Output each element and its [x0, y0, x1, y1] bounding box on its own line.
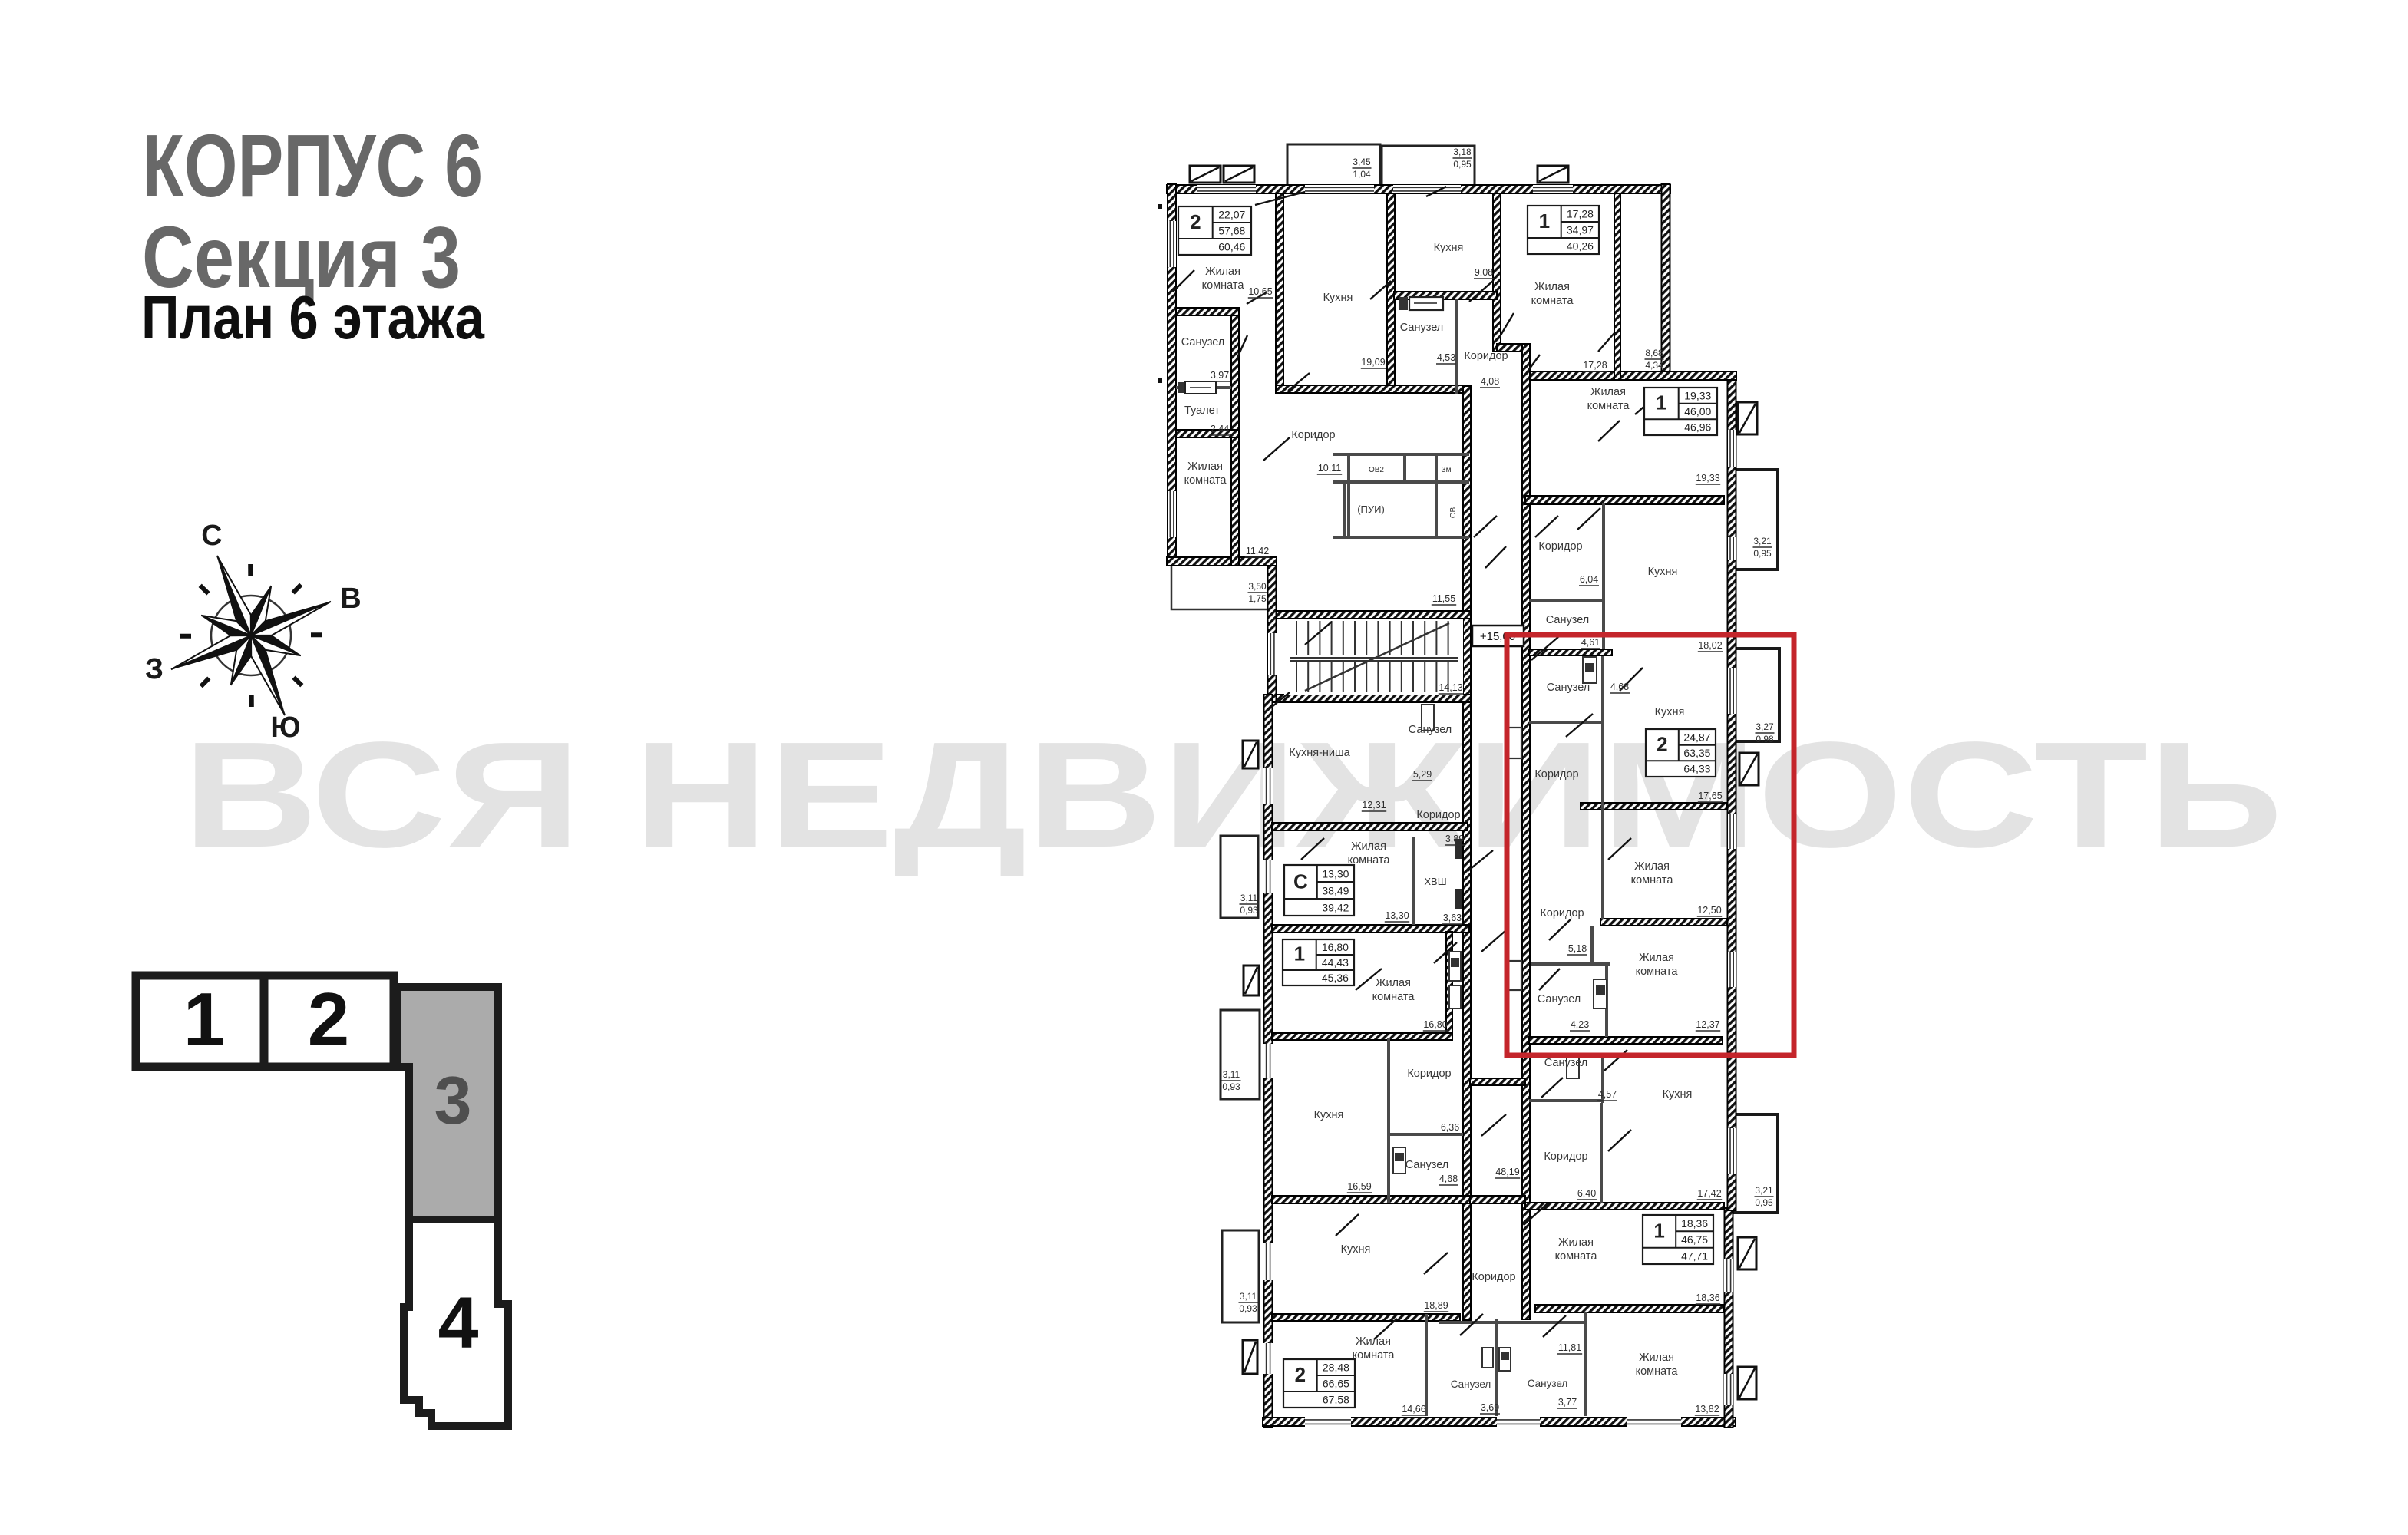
svg-text:0,95: 0,95	[1453, 159, 1472, 170]
svg-text:Жилая: Жилая	[1639, 1352, 1674, 1364]
svg-text:3,97: 3,97	[1211, 370, 1229, 381]
svg-text:14,66: 14,66	[1402, 1404, 1425, 1415]
svg-text:66,65: 66,65	[1323, 1378, 1349, 1390]
svg-text:Санузел: Санузел	[1181, 336, 1225, 348]
svg-text:17,28: 17,28	[1583, 360, 1607, 371]
svg-text:2: 2	[1657, 733, 1667, 756]
svg-text:38,49: 38,49	[1322, 884, 1349, 896]
svg-text:18,36: 18,36	[1696, 1292, 1719, 1303]
svg-text:Санузел: Санузел	[1528, 1378, 1568, 1389]
svg-text:39,42: 39,42	[1322, 901, 1349, 913]
svg-text:4,57: 4,57	[1598, 1089, 1617, 1100]
svg-text:12,31: 12,31	[1362, 800, 1386, 810]
svg-text:3: 3	[434, 1062, 472, 1138]
svg-text:13,30: 13,30	[1385, 910, 1409, 921]
svg-text:17,42: 17,42	[1697, 1188, 1721, 1199]
svg-text:46,96: 46,96	[1684, 421, 1711, 434]
svg-text:17,28: 17,28	[1567, 208, 1594, 220]
svg-text:24,87: 24,87	[1683, 731, 1710, 743]
svg-text:ХВШ: ХВШ	[1424, 876, 1446, 887]
svg-text:Ю: Ю	[270, 711, 300, 744]
svg-text:комната: комната	[1636, 1365, 1679, 1378]
svg-text:Кухня: Кухня	[1434, 242, 1464, 254]
svg-text:46,75: 46,75	[1681, 1233, 1708, 1246]
svg-text:Кухня: Кухня	[1341, 1243, 1371, 1256]
svg-text:ОВ: ОВ	[1449, 507, 1458, 518]
svg-text:4,61: 4,61	[1581, 637, 1600, 648]
svg-text:Коридор: Коридор	[1544, 1150, 1587, 1163]
svg-text:З: З	[145, 653, 164, 685]
svg-text:Санузел: Санузел	[1538, 993, 1581, 1005]
svg-text:Жилая: Жилая	[1534, 281, 1570, 293]
svg-text:57,68: 57,68	[1218, 225, 1245, 237]
svg-text:63,35: 63,35	[1683, 747, 1710, 759]
svg-text:16,59: 16,59	[1347, 1181, 1371, 1192]
svg-text:Жилая: Жилая	[1634, 860, 1670, 873]
svg-text:комната: комната	[1348, 854, 1391, 867]
svg-text:44,43: 44,43	[1322, 956, 1349, 969]
svg-text:Санузел: Санузел	[1409, 724, 1452, 736]
svg-text:Коридор: Коридор	[1407, 1068, 1451, 1080]
svg-text:3,45: 3,45	[1353, 157, 1371, 167]
svg-text:Кухня: Кухня	[1655, 706, 1685, 718]
svg-text:0,95: 0,95	[1753, 548, 1772, 559]
svg-text:10,65: 10,65	[1248, 286, 1272, 297]
svg-text:10,11: 10,11	[1318, 463, 1341, 474]
svg-text:3,89: 3,89	[1445, 834, 1464, 844]
svg-text:14,13: 14,13	[1439, 682, 1462, 693]
svg-text:47,71: 47,71	[1681, 1250, 1708, 1263]
svg-text:Кухня-ниша: Кухня-ниша	[1289, 747, 1350, 759]
svg-text:3,77: 3,77	[1558, 1397, 1577, 1408]
svg-text:Коридор: Коридор	[1416, 809, 1460, 821]
svg-text:2: 2	[1190, 210, 1201, 233]
svg-text:19,33: 19,33	[1684, 389, 1711, 401]
svg-text:Коридор: Коридор	[1538, 540, 1582, 553]
svg-text:3,50: 3,50	[1248, 581, 1267, 592]
svg-text:КОРПУС 6: КОРПУС 6	[142, 116, 483, 216]
svg-text:4,34: 4,34	[1645, 360, 1663, 371]
svg-text:13,82: 13,82	[1695, 1404, 1719, 1415]
svg-text:Кухня: Кухня	[1663, 1088, 1693, 1101]
svg-text:0,93: 0,93	[1240, 905, 1258, 916]
svg-text:60,46: 60,46	[1218, 241, 1245, 253]
svg-text:3,21: 3,21	[1753, 536, 1772, 546]
svg-text:Коридор: Коридор	[1540, 907, 1584, 919]
svg-text:3,11: 3,11	[1240, 893, 1258, 903]
svg-text:Жилая: Жилая	[1558, 1236, 1594, 1249]
svg-text:0,93: 0,93	[1239, 1303, 1257, 1314]
svg-text:0,98: 0,98	[1756, 734, 1774, 744]
svg-text:4,23: 4,23	[1571, 1019, 1589, 1030]
svg-text:Кухня: Кухня	[1648, 566, 1678, 578]
svg-text:13,30: 13,30	[1322, 867, 1349, 880]
svg-text:3,21: 3,21	[1755, 1185, 1773, 1196]
svg-text:11,55: 11,55	[1432, 593, 1455, 604]
svg-text:Коридор: Коридор	[1464, 350, 1508, 362]
svg-text:(ПУИ): (ПУИ)	[1357, 503, 1385, 515]
svg-text:Жилая: Жилая	[1376, 977, 1411, 989]
svg-text:Коридор: Коридор	[1534, 768, 1578, 781]
svg-text:С: С	[1293, 870, 1308, 893]
svg-text:Санузел: Санузел	[1544, 1057, 1588, 1069]
svg-text:Жилая: Жилая	[1590, 386, 1626, 398]
svg-text:4,53: 4,53	[1437, 352, 1455, 363]
svg-text:Санузел: Санузел	[1400, 322, 1444, 334]
svg-text:1,04: 1,04	[1353, 169, 1371, 180]
svg-text:3,11: 3,11	[1223, 1069, 1240, 1080]
svg-text:1: 1	[1539, 210, 1550, 233]
svg-text:комната: комната	[1531, 295, 1574, 307]
svg-text:ОВ2: ОВ2	[1369, 466, 1384, 474]
svg-text:комната: комната	[1631, 874, 1674, 886]
svg-text:Кухня: Кухня	[1323, 292, 1353, 304]
svg-text:12,50: 12,50	[1697, 905, 1721, 916]
svg-text:комната: комната	[1202, 279, 1245, 292]
svg-text:28,48: 28,48	[1323, 1362, 1349, 1374]
svg-text:Туалет: Туалет	[1184, 404, 1220, 417]
svg-text:18,02: 18,02	[1698, 640, 1722, 651]
svg-text:11,42: 11,42	[1246, 546, 1269, 556]
svg-text:17,65: 17,65	[1698, 791, 1722, 801]
svg-text:Коридор: Коридор	[1472, 1271, 1515, 1283]
svg-text:22,07: 22,07	[1218, 209, 1245, 221]
svg-text:34,97: 34,97	[1567, 224, 1594, 236]
svg-text:комната: комната	[1372, 991, 1415, 1003]
svg-text:3,63: 3,63	[1443, 913, 1462, 923]
svg-text:67,58: 67,58	[1323, 1394, 1349, 1406]
svg-text:4,68: 4,68	[1610, 682, 1629, 692]
svg-text:1: 1	[183, 977, 226, 1061]
svg-text:12,37: 12,37	[1696, 1019, 1719, 1030]
svg-text:19,09: 19,09	[1361, 357, 1385, 368]
svg-text:Жилая: Жилая	[1187, 460, 1223, 473]
svg-text:Жилая: Жилая	[1205, 266, 1240, 278]
svg-text:1,75: 1,75	[1248, 593, 1267, 604]
svg-text:6,36: 6,36	[1441, 1122, 1459, 1133]
svg-text:2: 2	[308, 977, 350, 1061]
svg-text:2,44: 2,44	[1211, 424, 1229, 434]
svg-text:4,08: 4,08	[1481, 376, 1499, 387]
svg-text:16,80: 16,80	[1423, 1019, 1447, 1030]
svg-text:46,00: 46,00	[1684, 405, 1711, 418]
svg-text:1: 1	[1294, 942, 1305, 966]
svg-text:1: 1	[1656, 391, 1666, 414]
svg-text:Кухня: Кухня	[1314, 1109, 1344, 1121]
svg-text:48,19: 48,19	[1495, 1167, 1519, 1177]
svg-text:6,40: 6,40	[1577, 1188, 1596, 1199]
svg-text:Санузел: Санузел	[1546, 614, 1590, 626]
svg-text:0,93: 0,93	[1222, 1081, 1240, 1092]
svg-text:Зм: Зм	[1442, 466, 1452, 474]
svg-text:11,81: 11,81	[1558, 1342, 1581, 1353]
svg-text:6,04: 6,04	[1580, 574, 1598, 585]
svg-text:Жилая: Жилая	[1356, 1335, 1391, 1348]
svg-text:0,95: 0,95	[1755, 1197, 1773, 1208]
svg-text:40,26: 40,26	[1567, 240, 1594, 253]
svg-text:9,08: 9,08	[1475, 267, 1493, 278]
svg-text:16,80: 16,80	[1322, 941, 1349, 953]
svg-text:Санузел: Санузел	[1451, 1378, 1491, 1390]
svg-text:4: 4	[438, 1282, 479, 1364]
svg-text:комната: комната	[1184, 474, 1227, 487]
svg-text:Жилая: Жилая	[1639, 952, 1674, 964]
svg-text:3,11: 3,11	[1240, 1291, 1257, 1302]
svg-text:18,89: 18,89	[1424, 1300, 1448, 1311]
svg-text:В: В	[340, 583, 361, 615]
svg-text:С: С	[201, 520, 222, 552]
svg-text:3,18: 3,18	[1453, 147, 1472, 157]
svg-text:План 6 этажа: План 6 этажа	[141, 283, 484, 352]
svg-text:Жилая: Жилая	[1351, 840, 1386, 853]
svg-text:45,36: 45,36	[1322, 972, 1349, 984]
svg-text:2: 2	[1295, 1363, 1306, 1386]
svg-text:4,68: 4,68	[1439, 1174, 1458, 1184]
svg-text:комната: комната	[1353, 1349, 1396, 1362]
svg-text:комната: комната	[1636, 966, 1679, 978]
svg-text:комната: комната	[1587, 400, 1630, 412]
svg-text:комната: комната	[1555, 1250, 1598, 1263]
svg-text:19,33: 19,33	[1696, 473, 1719, 484]
svg-text:1: 1	[1653, 1219, 1664, 1242]
svg-text:Санузел: Санузел	[1547, 682, 1590, 694]
svg-text:18,36: 18,36	[1681, 1217, 1708, 1230]
svg-text:5,18: 5,18	[1568, 943, 1587, 954]
svg-text:3,69: 3,69	[1481, 1402, 1499, 1413]
svg-text:5,29: 5,29	[1413, 769, 1432, 780]
svg-text:8,68: 8,68	[1645, 348, 1663, 358]
svg-text:Коридор: Коридор	[1291, 429, 1335, 441]
svg-text:3,27: 3,27	[1756, 721, 1774, 732]
svg-text:64,33: 64,33	[1683, 763, 1710, 775]
svg-text:Санузел: Санузел	[1405, 1159, 1449, 1171]
